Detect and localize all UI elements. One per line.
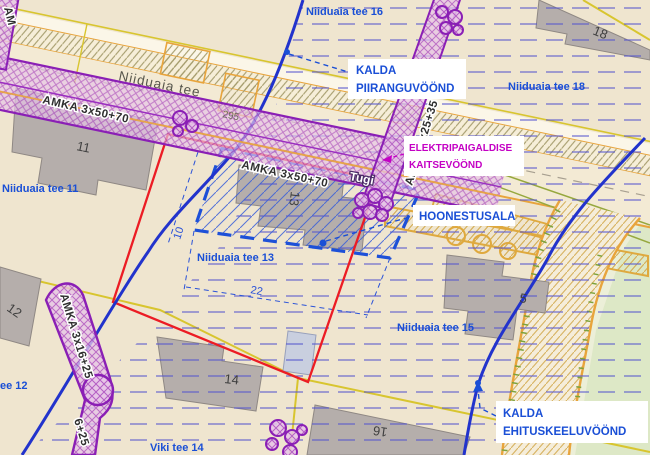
parcel-label-tee18: Niiduaia tee 18 — [508, 81, 585, 93]
dimension-22: 22 — [249, 284, 263, 298]
detail-plan-map: Niiduaia tee 295 Niiduaia tee 16 Niiduai… — [0, 0, 650, 455]
callout-text-line1: ELEKTRIPAIGALDISE — [409, 143, 512, 154]
parcel-label-tee11: Niiduaia tee 11 — [2, 183, 78, 195]
parcel-label-tee15: Niiduaia tee 15 — [397, 322, 474, 334]
callout-text-line2: PIIRANGUVÖÖND — [356, 82, 454, 95]
building-13-number: 13 — [286, 191, 303, 207]
street-label-viki-tee: Viki tee 14 — [150, 442, 204, 454]
building-14-number: 14 — [224, 371, 240, 387]
callout-text: HOONESTUSALA — [419, 211, 515, 223]
parcel-label-tee16: Niiduaia tee 16 — [306, 6, 383, 18]
parcel-label-tee12-partial: ee 12 — [0, 380, 28, 392]
callout-anchor-dot — [320, 240, 327, 247]
plan-map-canvas[interactable]: Niiduaia tee 295 Niiduaia tee 16 Niiduai… — [0, 0, 650, 455]
callout-text-line1: KALDA — [356, 65, 396, 77]
parcel-label-tee13: Niiduaia tee 13 — [197, 252, 274, 264]
corridor-sw-bulge — [83, 375, 113, 405]
callout-text-line2: EHITUSKEELUVÖÖND — [503, 425, 626, 438]
callout-text-line2: KAITSEVÖÖND — [409, 158, 482, 171]
building-16-number: 16 — [372, 423, 388, 440]
callout-text-line1: KALDA — [503, 408, 543, 420]
